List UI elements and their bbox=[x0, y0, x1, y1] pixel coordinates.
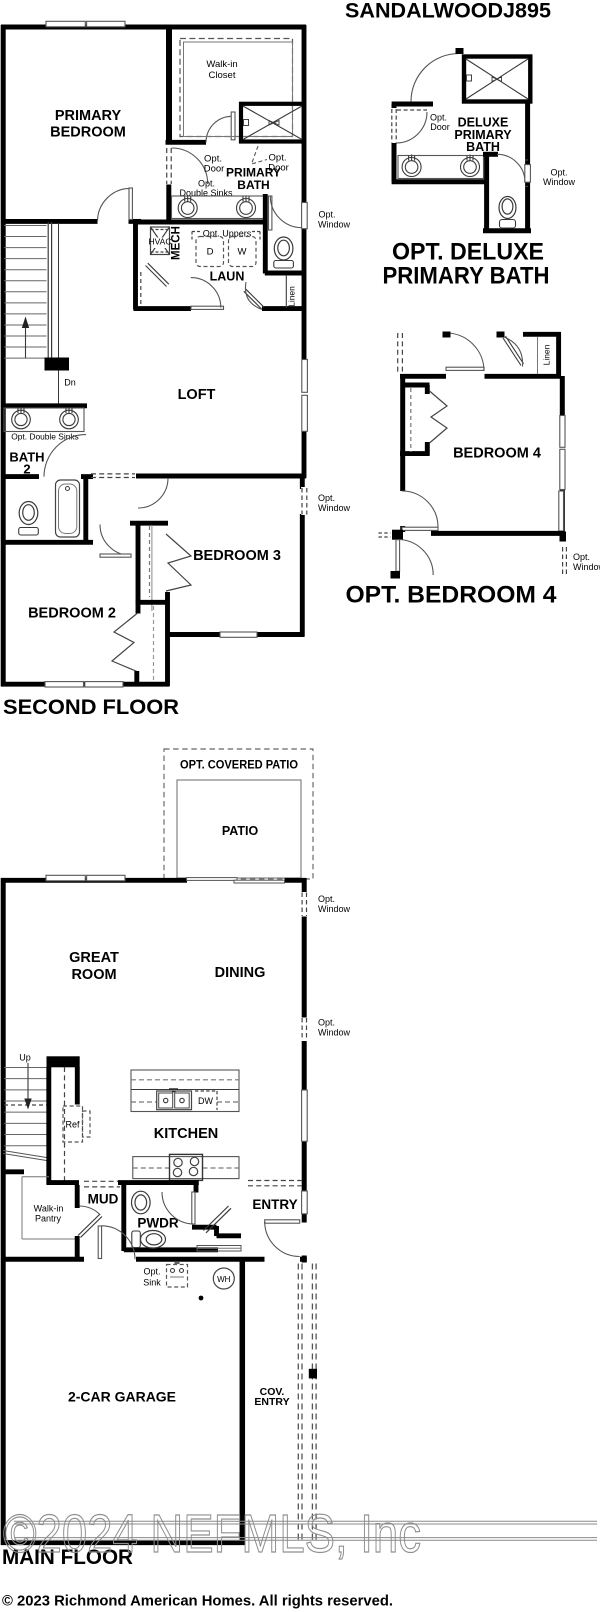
svg-text:©2024 NEFMLS, Inc: ©2024 NEFMLS, Inc bbox=[3, 1504, 421, 1564]
svg-text:BEDROOM 2: BEDROOM 2 bbox=[28, 606, 116, 622]
svg-text:Door: Door bbox=[430, 122, 450, 132]
svg-text:W: W bbox=[238, 247, 247, 258]
svg-text:Opt.: Opt. bbox=[430, 113, 447, 123]
svg-text:HVAC: HVAC bbox=[149, 237, 172, 247]
svg-text:Window: Window bbox=[573, 562, 600, 572]
svg-text:ROOM: ROOM bbox=[71, 967, 116, 983]
svg-text:ENTRY: ENTRY bbox=[252, 1197, 297, 1212]
svg-text:Walk-in: Walk-in bbox=[34, 1204, 64, 1214]
svg-text:Window: Window bbox=[318, 503, 351, 513]
svg-text:SECOND FLOOR: SECOND FLOOR bbox=[3, 696, 179, 719]
svg-text:Up: Up bbox=[19, 1053, 31, 1063]
svg-text:LOFT: LOFT bbox=[178, 387, 216, 403]
svg-text:Window: Window bbox=[318, 904, 351, 914]
svg-text:Linen: Linen bbox=[287, 286, 297, 307]
svg-text:LAUN: LAUN bbox=[210, 270, 245, 284]
svg-text:DW: DW bbox=[198, 1096, 213, 1106]
svg-text:Walk-in: Walk-in bbox=[206, 59, 237, 70]
svg-text:BEDROOM 3: BEDROOM 3 bbox=[193, 548, 281, 564]
svg-text:Opt.: Opt. bbox=[318, 894, 335, 904]
svg-text:MUD: MUD bbox=[88, 1192, 119, 1207]
svg-text:Sink: Sink bbox=[143, 1278, 161, 1288]
svg-text:Door: Door bbox=[204, 164, 225, 175]
svg-text:PRIMARY BATH: PRIMARY BATH bbox=[383, 263, 550, 290]
svg-text:ENTRY: ENTRY bbox=[254, 1396, 289, 1408]
svg-text:Pantry: Pantry bbox=[35, 1214, 62, 1224]
svg-text:Opt.: Opt. bbox=[550, 168, 567, 178]
svg-text:Opt.: Opt. bbox=[318, 1018, 335, 1028]
svg-text:PRIMARY: PRIMARY bbox=[55, 108, 122, 124]
svg-text:D: D bbox=[207, 247, 214, 258]
svg-text:Opt.: Opt. bbox=[318, 493, 335, 503]
svg-text:Linen: Linen bbox=[542, 344, 552, 365]
svg-text:GREAT: GREAT bbox=[69, 950, 119, 966]
svg-text:Window: Window bbox=[318, 220, 351, 230]
svg-text:PATIO: PATIO bbox=[222, 824, 259, 838]
svg-text:Opt.: Opt. bbox=[318, 210, 335, 220]
svg-text:Ref: Ref bbox=[65, 1120, 80, 1130]
svg-text:Dn: Dn bbox=[64, 378, 76, 388]
svg-text:BEDROOM 4: BEDROOM 4 bbox=[453, 446, 541, 462]
svg-text:BATH: BATH bbox=[237, 178, 269, 192]
svg-text:DINING: DINING bbox=[215, 965, 266, 981]
svg-text:MECH: MECH bbox=[171, 226, 183, 260]
svg-text:Opt. Double Sinks: Opt. Double Sinks bbox=[11, 432, 79, 442]
svg-text:2-CAR GARAGE: 2-CAR GARAGE bbox=[68, 1389, 176, 1405]
svg-text:Opt.: Opt. bbox=[198, 179, 215, 189]
svg-text:OPT. DELUXE: OPT. DELUXE bbox=[392, 239, 544, 266]
svg-text:BEDROOM: BEDROOM bbox=[50, 125, 126, 141]
svg-text:OPT. BEDROOM 4: OPT. BEDROOM 4 bbox=[346, 582, 558, 609]
svg-text:WH: WH bbox=[217, 1275, 231, 1284]
svg-text:Opt.: Opt. bbox=[573, 552, 590, 562]
svg-text:KITCHEN: KITCHEN bbox=[154, 1126, 218, 1142]
svg-text:Opt.: Opt. bbox=[143, 1267, 160, 1277]
svg-text:Window: Window bbox=[318, 1028, 351, 1038]
svg-text:SANDALWOODJ895: SANDALWOODJ895 bbox=[345, 0, 551, 23]
svg-text:Closet: Closet bbox=[209, 70, 236, 81]
svg-text:Window: Window bbox=[543, 177, 576, 187]
svg-text:© 2023 Richmond American Homes: © 2023 Richmond American Homes. All righ… bbox=[2, 1594, 393, 1610]
svg-text:PWDR: PWDR bbox=[137, 1216, 178, 1231]
svg-text:OPT. COVERED PATIO: OPT. COVERED PATIO bbox=[180, 760, 298, 772]
